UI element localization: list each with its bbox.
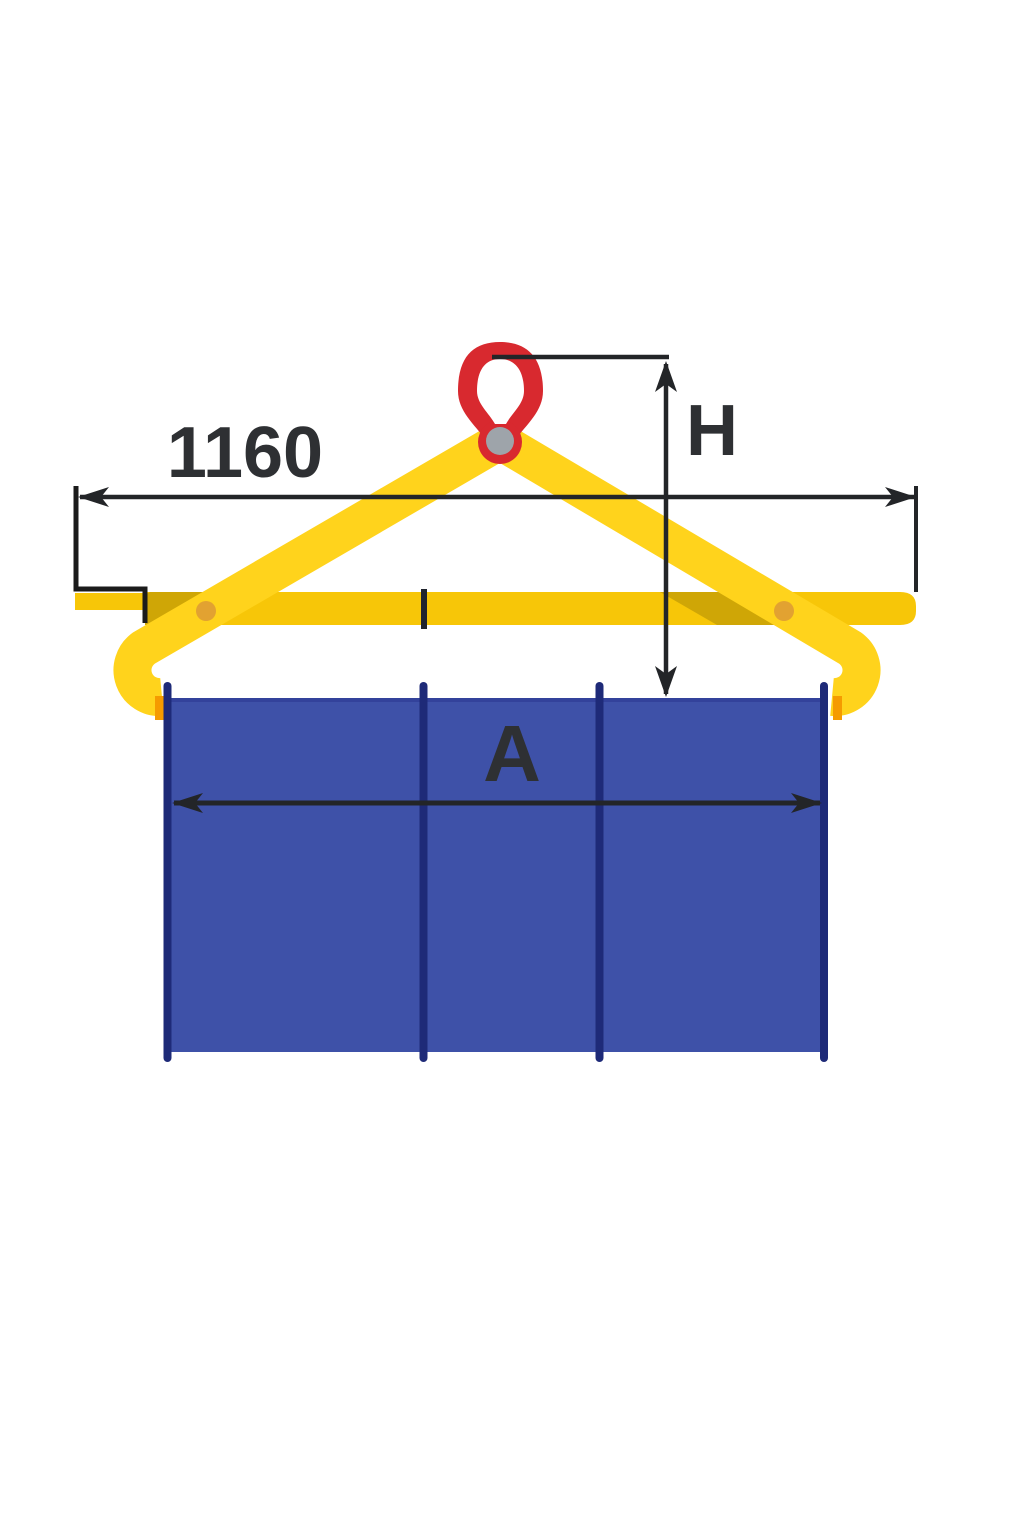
lifting-tongs-diagram: H 1160 A [0, 0, 1024, 1536]
beam-inner-bar-stub [75, 593, 147, 610]
dim-load-width-label: A [483, 709, 541, 798]
right-pivot-pin [774, 601, 794, 621]
dim-span-label: 1160 [167, 413, 323, 493]
load-top-edge-shade [165, 698, 827, 702]
eye-pivot-pin [486, 427, 514, 455]
diagram-canvas: H 1160 A [0, 0, 1024, 1536]
left-pivot-pin [196, 601, 216, 621]
left-hook-tip [155, 696, 164, 720]
right-hook-tip [833, 696, 842, 720]
right-arm-hook [500, 441, 862, 697]
dim-height-label: H [686, 391, 738, 471]
